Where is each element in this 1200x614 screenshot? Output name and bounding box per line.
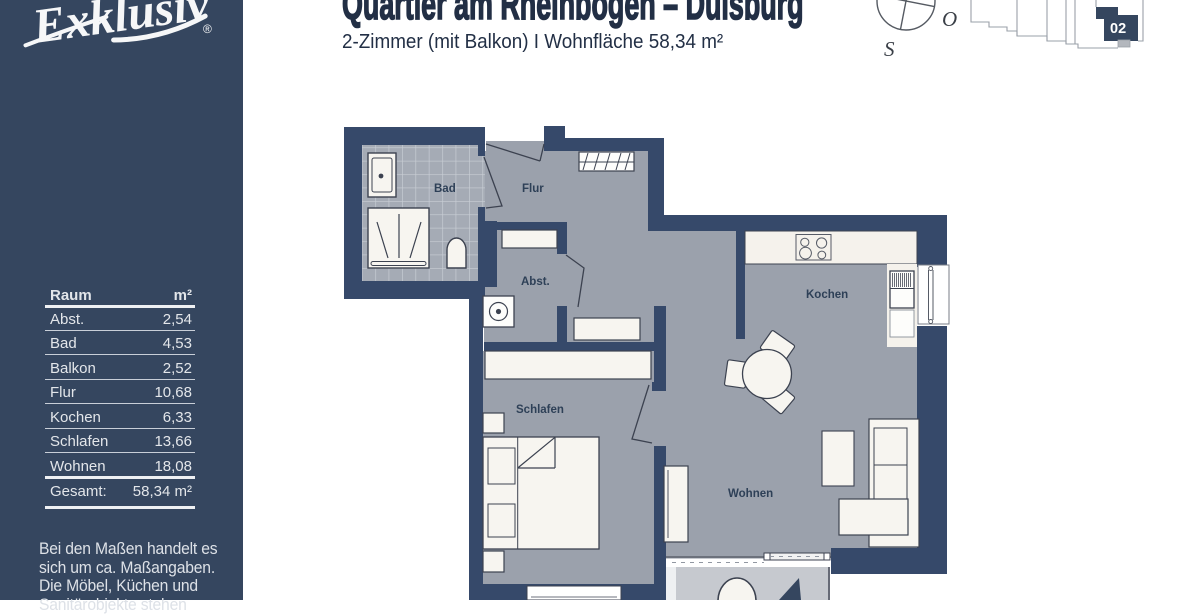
svg-text:O: O (942, 7, 957, 31)
svg-text:Bad: Bad (434, 183, 456, 195)
svg-text:Schlafen: Schlafen (516, 404, 564, 416)
svg-text:Wohnen: Wohnen (728, 488, 773, 500)
svg-text:02: 02 (1110, 21, 1126, 37)
svg-text:S: S (884, 37, 895, 61)
svg-text:Abst.: Abst. (521, 276, 550, 288)
svg-text:Kochen: Kochen (806, 289, 848, 301)
svg-text:Flur: Flur (522, 183, 544, 195)
